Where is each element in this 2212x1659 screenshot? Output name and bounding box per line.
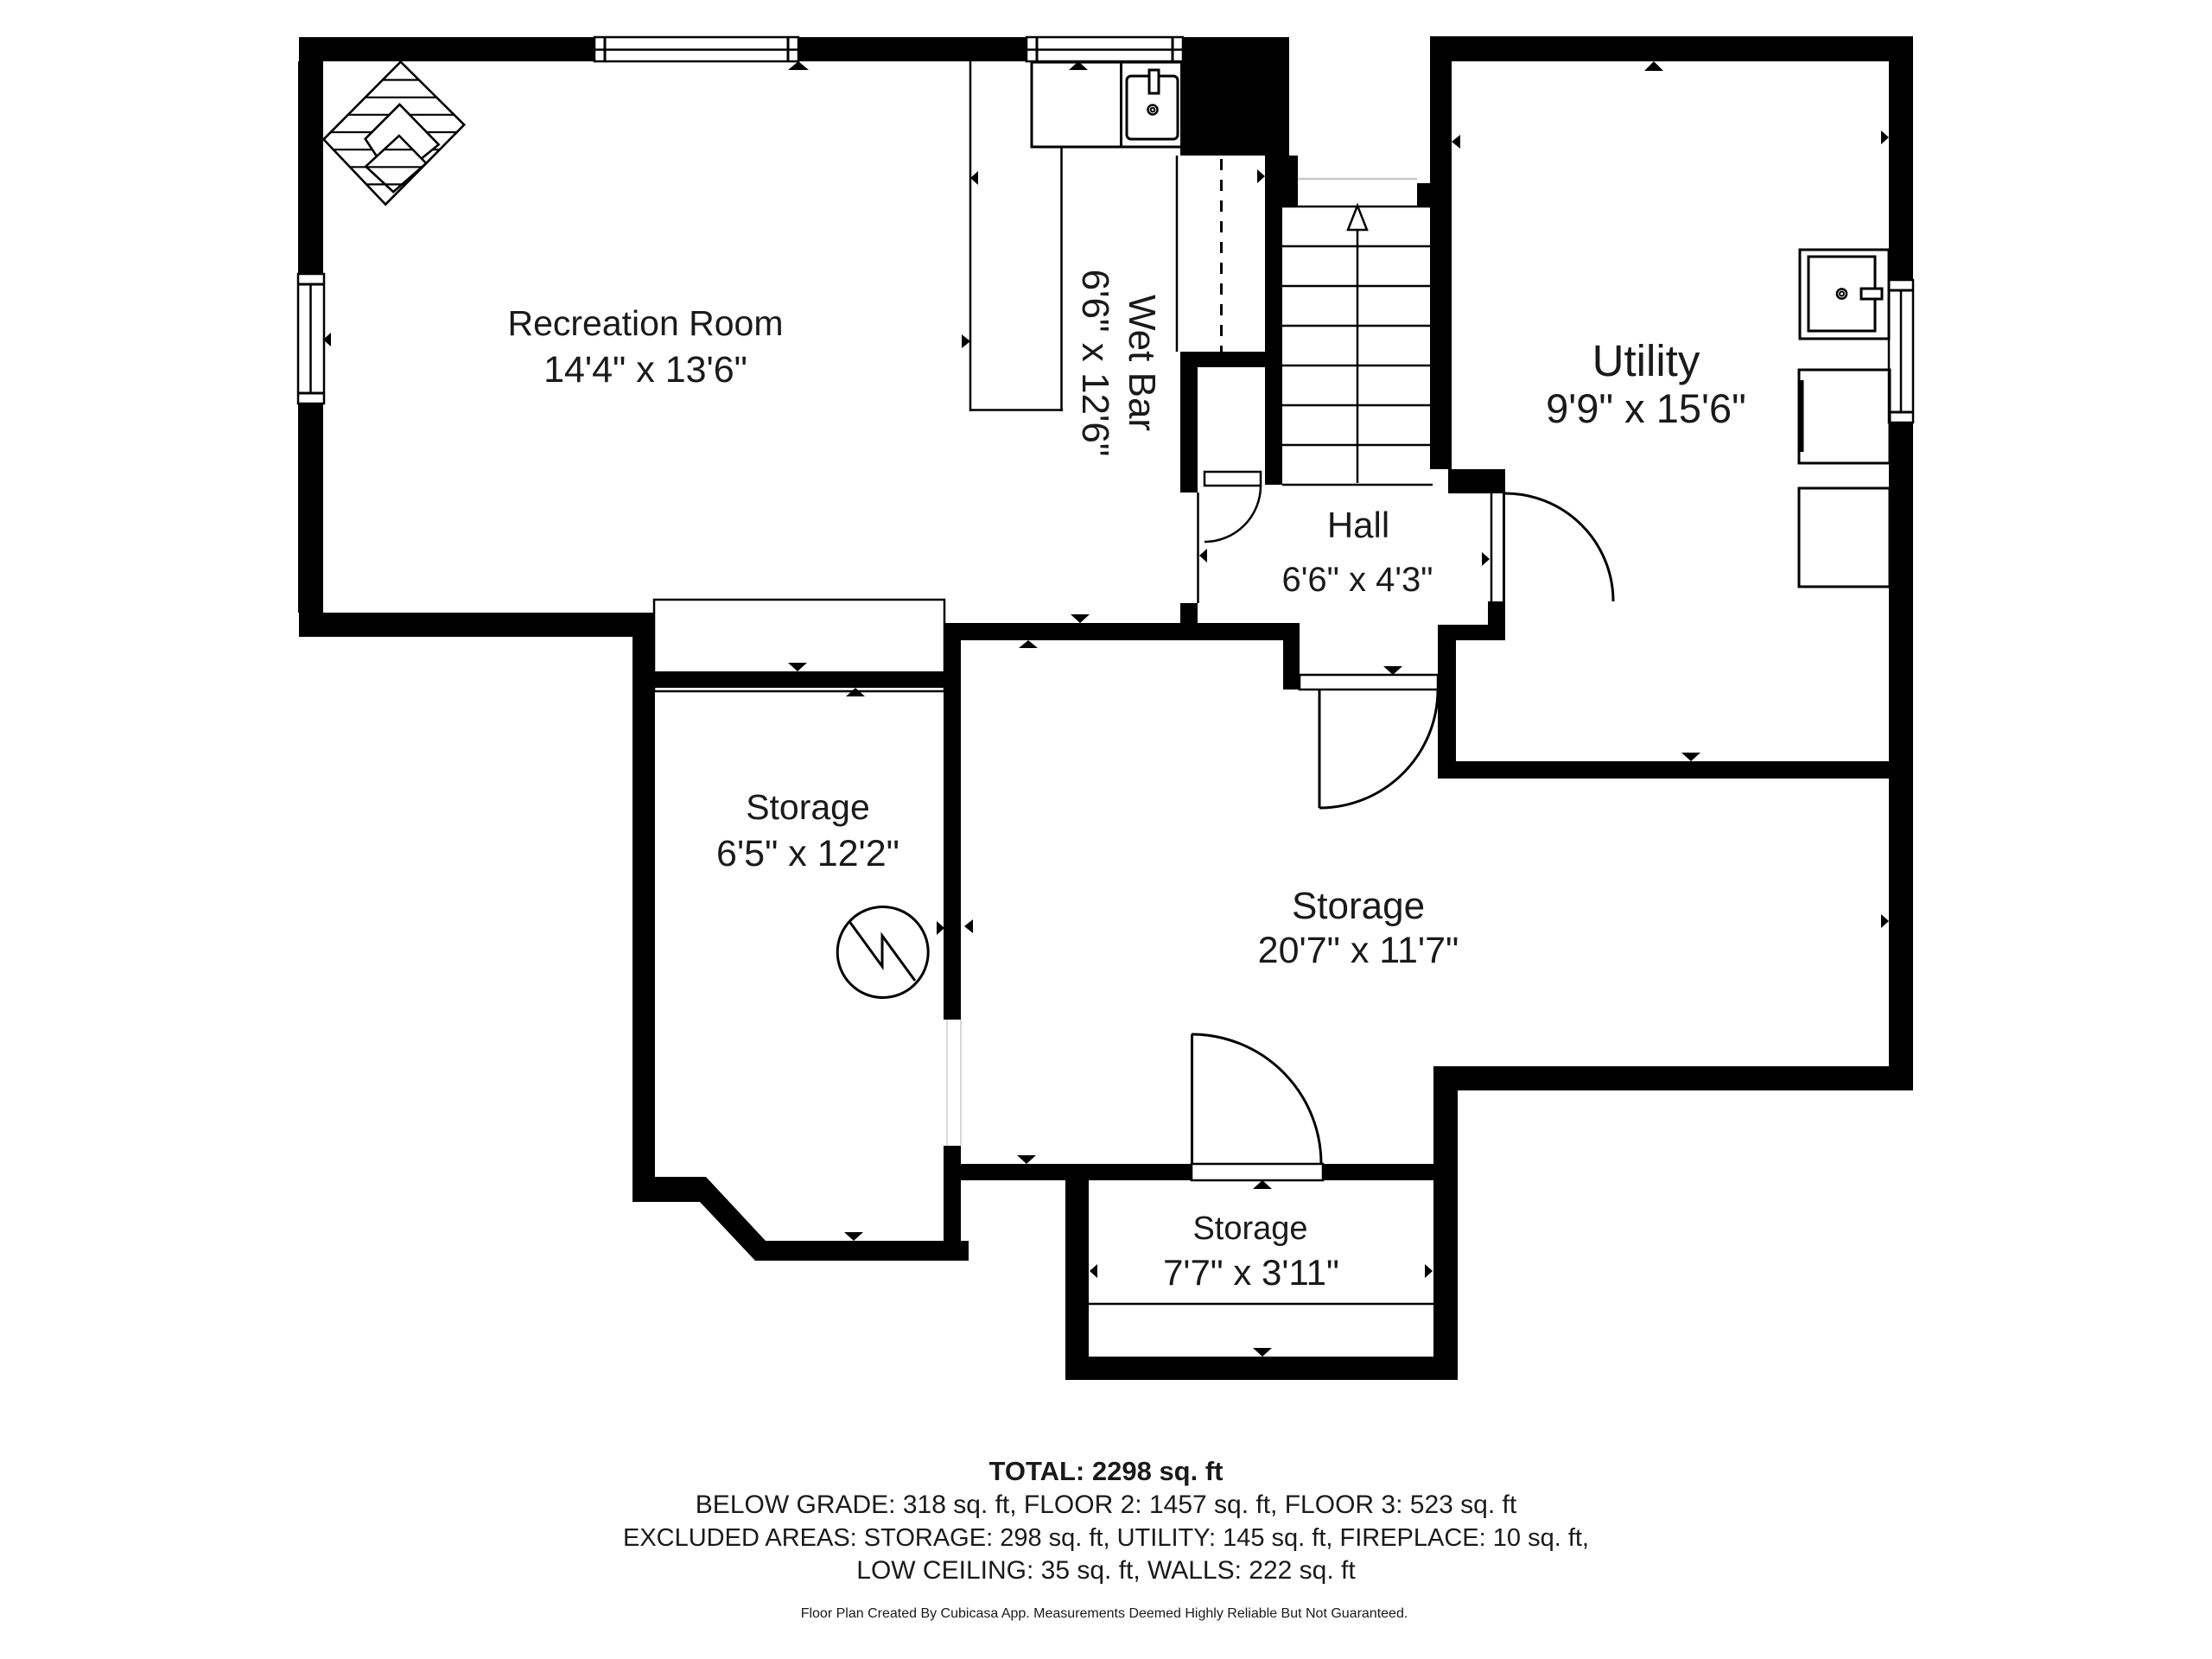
svg-text:20'7" x 11'7": 20'7" x 11'7" — [1258, 930, 1459, 971]
svg-text:14'4" x 13'6": 14'4" x 13'6" — [543, 349, 747, 391]
svg-text:7'7" x 3'11": 7'7" x 3'11" — [1163, 1252, 1339, 1293]
svg-text:6'6" x 12'6": 6'6" x 12'6" — [1074, 270, 1116, 457]
svg-text:Utility: Utility — [1592, 336, 1700, 385]
svg-text:Hall: Hall — [1327, 505, 1389, 545]
svg-text:Wet Bar: Wet Bar — [1121, 295, 1163, 431]
svg-text:EXCLUDED AREAS: STORAGE: 298 s: EXCLUDED AREAS: STORAGE: 298 sq. ft, UTI… — [623, 1524, 1589, 1552]
svg-text:Storage: Storage — [1292, 885, 1425, 927]
svg-text:BELOW GRADE: 318 sq. ft, FLOOR: BELOW GRADE: 318 sq. ft, FLOOR 2: 1457 s… — [696, 1491, 1517, 1519]
svg-text:9'9" x 15'6": 9'9" x 15'6" — [1546, 385, 1746, 431]
svg-text:Storage: Storage — [746, 787, 870, 827]
svg-text:LOW CEILING: 35 sq. ft, WALLS:: LOW CEILING: 35 sq. ft, WALLS: 222 sq. f… — [856, 1556, 1356, 1585]
svg-text:6'5" x 12'2": 6'5" x 12'2" — [716, 833, 899, 874]
svg-text:TOTAL: 2298 sq. ft: TOTAL: 2298 sq. ft — [988, 1456, 1223, 1486]
svg-text:6'6" x 4'3": 6'6" x 4'3" — [1282, 561, 1433, 599]
svg-text:Floor Plan Created By Cubicasa: Floor Plan Created By Cubicasa App. Meas… — [801, 1606, 1408, 1621]
svg-text:Storage: Storage — [1192, 1211, 1307, 1247]
svg-text:Recreation Room: Recreation Room — [507, 303, 783, 343]
